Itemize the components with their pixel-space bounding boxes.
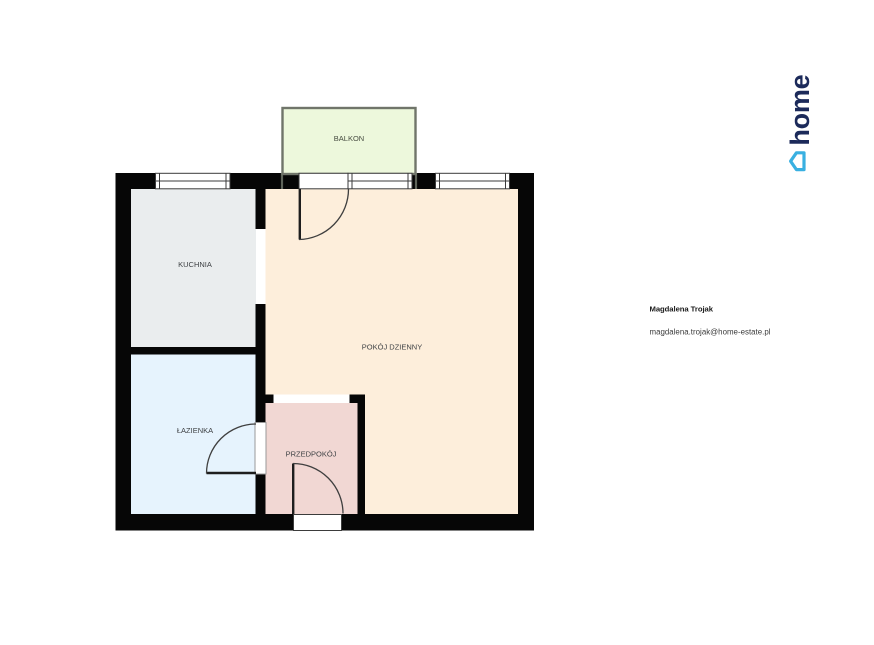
svg-text:BALKON: BALKON [334, 134, 364, 143]
svg-text:PRZEDPOKÓJ: PRZEDPOKÓJ [286, 450, 337, 459]
svg-text:ŁAZIENKA: ŁAZIENKA [177, 426, 213, 435]
svg-text:magdalena.trojak@home-estate.p: magdalena.trojak@home-estate.pl [650, 328, 771, 337]
svg-text:KUCHNIA: KUCHNIA [178, 260, 212, 269]
svg-text:Magdalena Trojak: Magdalena Trojak [650, 304, 714, 313]
svg-text:POKÓJ DZIENNY: POKÓJ DZIENNY [362, 343, 422, 352]
svg-text:home: home [785, 74, 815, 146]
